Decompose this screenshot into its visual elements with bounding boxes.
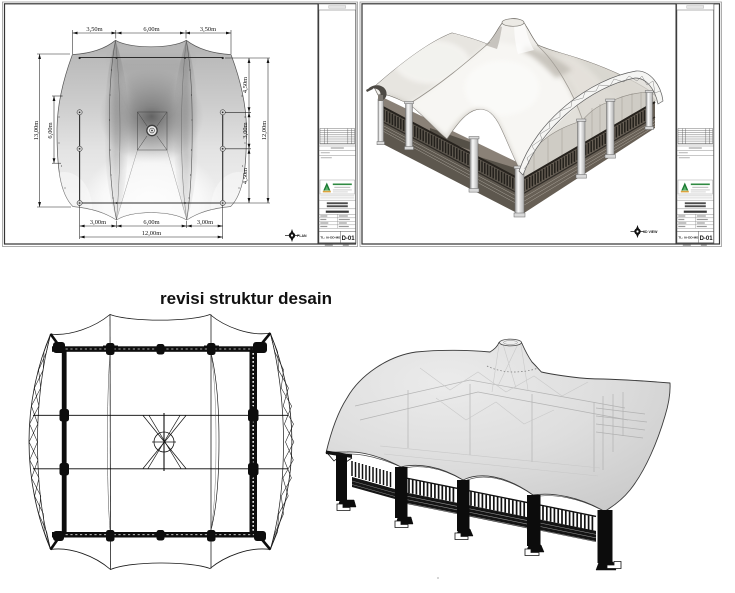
svg-text:4,50m: 4,50m <box>242 77 249 93</box>
svg-text:3,00m: 3,00m <box>197 219 213 226</box>
svg-text:3,00m: 3,00m <box>242 122 249 138</box>
svg-text:12,00m: 12,00m <box>142 230 161 237</box>
svg-text:6,00m: 6,00m <box>47 122 54 138</box>
svg-text:PLAN: PLAN <box>297 234 307 238</box>
svg-text:4,50m: 4,50m <box>242 168 249 184</box>
svg-text:3D VIEW: 3D VIEW <box>643 230 658 234</box>
svg-text:3,00m: 3,00m <box>90 219 106 226</box>
svg-text:13,00m: 13,00m <box>33 121 40 140</box>
svg-text:3,50m: 3,50m <box>200 26 216 33</box>
svg-text:6,00m: 6,00m <box>143 26 159 33</box>
svg-text:6,00m: 6,00m <box>143 219 159 226</box>
svg-text:revisi struktur desain: revisi struktur desain <box>160 289 332 308</box>
svg-text:3,50m: 3,50m <box>86 26 102 33</box>
svg-text:12,00m: 12,00m <box>261 121 268 140</box>
